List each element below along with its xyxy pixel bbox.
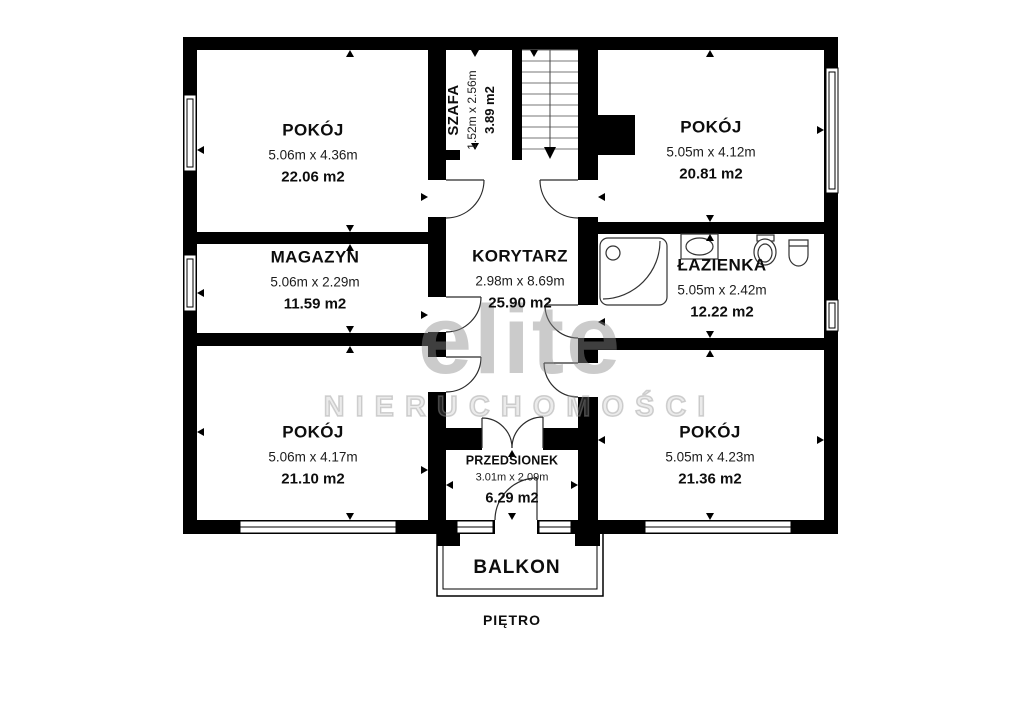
door-pokoj-top-left	[446, 180, 484, 218]
room-area: 20.81 m2	[666, 166, 755, 183]
stair-direction-arrow	[544, 147, 556, 159]
room-name: ŁAZIENKA	[677, 256, 766, 276]
room-dims: 2.98m x 8.69m	[472, 274, 568, 289]
room-label-pokoj-top-right: POKÓJ 5.05m x 4.12m 20.81 m2	[666, 118, 755, 183]
room-dims: 5.05m x 4.12m	[666, 145, 755, 160]
room-dims: 5.06m x 4.36m	[268, 148, 357, 163]
room-name: PRZEDSIONEK	[466, 454, 559, 468]
room-area: 21.10 m2	[268, 471, 357, 488]
staircase	[522, 50, 578, 159]
room-name: POKÓJ	[666, 118, 755, 138]
bidet	[789, 240, 808, 266]
room-area: 25.90 m2	[472, 295, 568, 312]
room-name: POKÓJ	[665, 423, 754, 443]
room-name: SZAFA	[445, 70, 462, 149]
room-name: KORYTARZ	[472, 247, 568, 267]
room-area: 6.29 m2	[466, 491, 559, 507]
room-label-pokoj-bottom-left: POKÓJ 5.06m x 4.17m 21.10 m2	[268, 423, 357, 488]
room-name: POKÓJ	[268, 423, 357, 443]
room-area: 21.36 m2	[665, 471, 754, 488]
room-label-szafa: SZAFA 1.52m x 2.56m 3.89 m2	[445, 70, 497, 149]
room-label-magazyn: MAGAZYN 5.06m x 2.29m 11.59 m2	[270, 248, 359, 313]
room-dims: 1.52m x 2.56m	[465, 70, 479, 149]
room-area: 12.22 m2	[677, 304, 766, 321]
door-pokoj-bottom-right	[544, 363, 578, 397]
floor-title: PIĘTRO	[483, 612, 541, 628]
room-area: 3.89 m2	[482, 70, 497, 149]
room-dims: 5.06m x 4.17m	[268, 450, 357, 465]
room-dims: 5.06m x 2.29m	[270, 275, 359, 290]
door-pokoj-top-right	[540, 180, 578, 218]
room-label-lazienka: ŁAZIENKA 5.05m x 2.42m 12.22 m2	[677, 256, 766, 321]
door-pokoj-bottom-left	[446, 357, 481, 392]
room-area: 11.59 m2	[270, 296, 359, 313]
room-area: 22.06 m2	[268, 169, 357, 186]
room-dims: 5.05m x 4.23m	[665, 450, 754, 465]
room-label-przedsionek: PRZEDSIONEK 3.01m x 2.09m 6.29 m2	[466, 454, 559, 507]
floor-plan-page: elite NIERUCHOMOŚCI POKÓJ 5.06m x 4.36m …	[0, 0, 1024, 724]
room-dims: 3.01m x 2.09m	[466, 472, 559, 484]
room-name: MAGAZYN	[270, 248, 359, 268]
room-label-korytarz: KORYTARZ 2.98m x 8.69m 25.90 m2	[472, 247, 568, 312]
room-label-pokoj-bottom-right: POKÓJ 5.05m x 4.23m 21.36 m2	[665, 423, 754, 488]
room-name: POKÓJ	[268, 121, 357, 141]
room-dims: 5.05m x 2.42m	[677, 283, 766, 298]
room-label-pokoj-top-left: POKÓJ 5.06m x 4.36m 22.06 m2	[268, 121, 357, 186]
balcony-label: BALKON	[473, 557, 560, 579]
shower	[600, 238, 667, 305]
